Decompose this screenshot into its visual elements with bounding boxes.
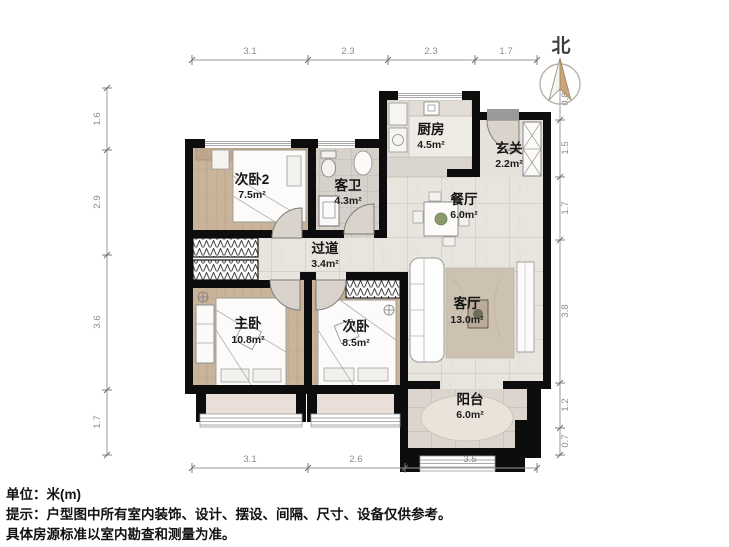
stove-icon [424,102,439,115]
dim-right-3: 3.8 [560,304,571,317]
dimension-left [102,85,112,458]
room-bedroom2-label: 次卧2 [235,171,270,187]
wall-kitchen-left [379,91,387,237]
toilet-tank [321,151,336,158]
wall-bottom [185,385,408,394]
wall-kitchen-bottom [447,169,480,177]
room-living-label: 客厅 [453,295,481,311]
bay-window-bedroom [311,414,400,427]
dim-right-1: 1.5 [560,141,571,154]
wall-bedroom-living-divider [400,272,408,389]
shower-tray [354,151,372,175]
dim-top-3: 1.7 [499,46,512,57]
room-bathroom-label: 客卫 [334,177,362,193]
wall-master-top [185,280,270,288]
wall-right [543,112,551,388]
window-bathroom [318,139,355,148]
room-foyer-area: 2.2m² [495,158,523,170]
room-bedroom-area: 8.5m² [342,337,370,349]
footer-notes: 单位：米(m) 提示：户型图中所有室内装饰、设计、摆设、间隔、尺寸、设备仅供参考… [6,485,452,545]
wall-balcony-corner [515,420,541,450]
chair [413,211,423,223]
wall-bed2-bottom [193,230,272,238]
pillow [253,369,281,382]
room-dining-area: 6.0m² [450,209,478,221]
wall-bath-bottom-left [302,230,344,238]
room-hallway-area: 3.4m² [311,258,339,270]
door-entry-leaf [487,109,519,120]
room-balcony-area: 6.0m² [456,409,484,421]
bay-sill [206,394,296,414]
disclaimer-line2: 具体房源标准以室内勘查和测量为准。 [6,525,452,545]
room-dining-label: 餐厅 [450,191,478,207]
kitchen-sink [389,128,407,152]
room-living-area: 13.0m² [450,314,484,326]
plant-icon [435,213,447,225]
wardrobe [196,305,214,363]
window-kitchen [398,91,462,100]
bay-window-balcony [420,456,495,471]
dim-left-0: 1.6 [92,112,103,125]
dim-right-2: 1.7 [560,201,571,214]
room-bedroom-label: 次卧 [343,318,370,334]
room-kitchen-area: 4.5m² [417,139,445,151]
pillow [358,368,388,381]
dim-bottom-0: 3.1 [243,454,256,465]
room-bathroom-area: 4.3m² [334,195,362,207]
toilet-bowl [322,159,336,177]
wall-bed2-bath-divider [308,139,316,238]
window-bedroom2 [205,139,291,148]
bay-window-master [200,414,302,427]
room-foyer-label: 玄关 [496,140,524,156]
tv-console [517,262,534,352]
floor-plan-canvas: 次卧2 7.5m² 客卫 4.3m² 厨房 4.5m² 玄关 2.2m² 餐厅 … [0,0,729,547]
wall-bath-bottom-right [374,230,387,238]
wall-master-bedroom-divider [304,272,312,394]
wall-foyer-top-left [472,112,487,120]
wardrobe-hatched [346,280,400,298]
unit-note: 单位：米(m) [6,485,452,505]
hallway-closets [193,238,258,280]
wall-kitchen-right [472,91,480,177]
wall-left [185,139,193,394]
room-balcony-label: 阳台 [457,391,484,407]
dim-bottom-1: 2.6 [349,454,362,465]
dim-right-4: 1.2 [560,398,571,411]
chair [429,192,441,201]
room-bedroom2-area: 7.5m² [238,189,266,201]
closet-hatched [193,260,258,280]
dim-top-1: 2.3 [341,46,354,57]
balcony-bay-stub [495,458,525,472]
room-master-area: 10.8m² [231,334,265,346]
chair [443,237,455,246]
room-kitchen-label: 厨房 [418,121,445,137]
dim-bottom-2: 3.5 [463,454,476,465]
dim-left-2: 3.6 [92,315,103,328]
wall-bedroom-top [346,272,408,280]
north-label: 北 [551,35,570,57]
room-master-label: 主卧 [235,315,262,331]
disclaimer-line1: 提示：户型图中所有室内装饰、设计、摆设、间隔、尺寸、设备仅供参考。 [6,505,452,525]
bay-sill [317,394,394,414]
room-hallway-label: 过道 [312,240,339,256]
dim-top-2: 2.3 [424,46,437,57]
dim-top-0: 3.1 [243,46,256,57]
pillow [287,156,301,186]
foyer-furniture [523,122,541,176]
dim-left-1: 2.9 [92,195,103,208]
dimension-top [189,55,540,65]
dim-right-5: 0.7 [560,434,571,447]
fridge [389,103,407,125]
closet-hatched [193,238,258,257]
nightstand [212,150,229,169]
dim-left-3: 1.7 [92,415,103,428]
floor-plan-page: 次卧2 7.5m² 客卫 4.3m² 厨房 4.5m² 玄关 2.2m² 餐厅 … [0,0,729,547]
